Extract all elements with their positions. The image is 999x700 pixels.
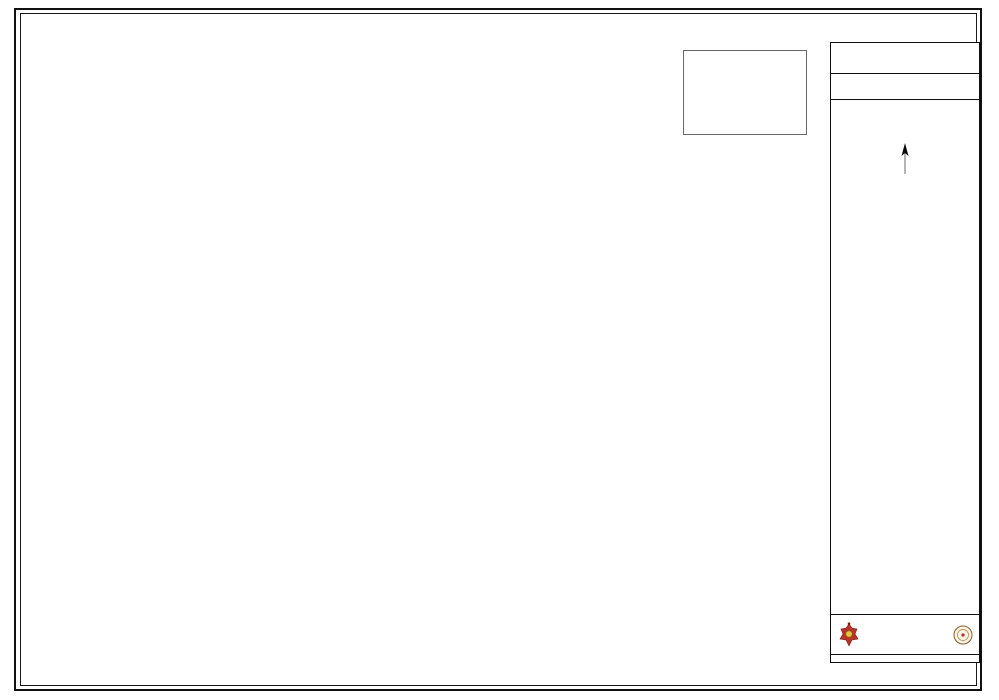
credits-box	[831, 615, 979, 655]
date-box	[831, 655, 979, 672]
legend	[841, 240, 977, 248]
title-panel	[830, 42, 980, 663]
ward-number-title	[831, 74, 979, 100]
inset-map	[683, 50, 807, 135]
inset-map-graphic	[684, 53, 806, 121]
kmc-emblem-icon	[837, 622, 861, 648]
sheet-title	[831, 43, 979, 74]
department-seal-icon	[953, 625, 973, 645]
profile-section	[831, 109, 979, 615]
north-arrow-icon	[892, 141, 918, 177]
north-arrow	[831, 141, 979, 182]
